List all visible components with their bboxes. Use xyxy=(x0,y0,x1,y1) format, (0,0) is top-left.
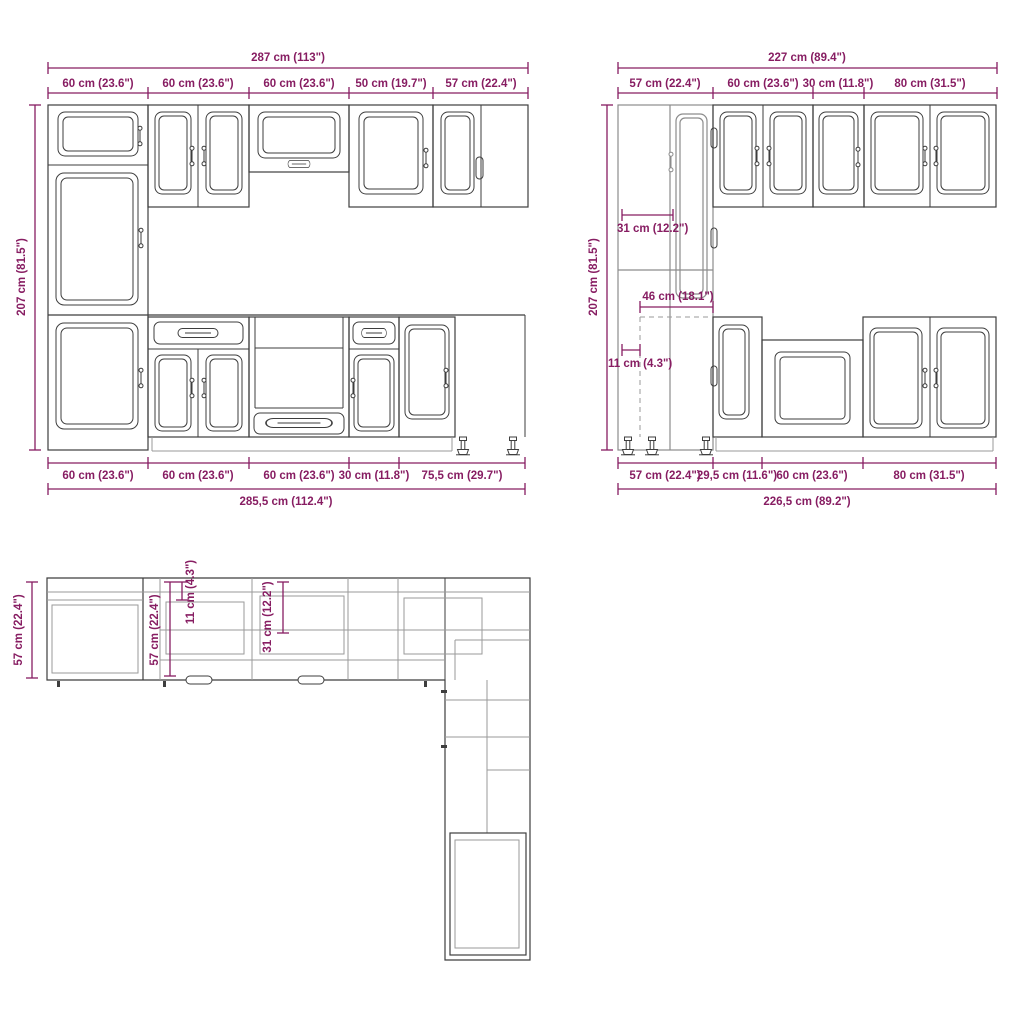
side-top-segment-label: 30 cm (11.8") xyxy=(803,78,874,90)
front-top-segment-label: 60 cm (23.6") xyxy=(263,78,334,90)
front-bottom-segment-label: 30 cm (11.8") xyxy=(339,470,410,482)
front-top-segment-label: 60 cm (23.6") xyxy=(62,78,133,90)
side-upper-depth-label: 31 cm (12.2") xyxy=(617,223,688,235)
side-top-segment-label: 80 cm (31.5") xyxy=(894,78,965,90)
front-overall-width-bottom-label: 285,5 cm (112.4") xyxy=(239,496,332,508)
front-top-segment-label: 60 cm (23.6") xyxy=(162,78,233,90)
front-bottom-segment-label: 60 cm (23.6") xyxy=(162,470,233,482)
front-height-label: 207 cm (81.5") xyxy=(16,238,28,316)
plan-side-offset-label: 11 cm (4.3") xyxy=(185,560,197,624)
front-cabinet-drawing xyxy=(48,105,528,455)
side-offset-label: 11 cm (4.3") xyxy=(608,358,672,370)
side-corner-clearance-label: 46 cm (18.1") xyxy=(642,291,713,303)
kitchen-cabinet-dimension-diagram: 287 cm (113") 60 cm (23.6") 60 cm (23.6"… xyxy=(0,0,1024,1024)
side-bottom-segment-label: 29,5 cm (11.6") xyxy=(697,470,777,482)
side-overall-width-label: 227 cm (89.4") xyxy=(768,52,846,64)
side-bottom-segment-label: 57 cm (22.4") xyxy=(629,470,700,482)
front-elevation-diagram: 287 cm (113") 60 cm (23.6") 60 cm (23.6"… xyxy=(16,52,528,508)
plan-wall-depth-label: 31 cm (12.2") xyxy=(262,581,274,652)
front-bottom-segment-label: 60 cm (23.6") xyxy=(62,470,133,482)
front-bottom-segment-label: 60 cm (23.6") xyxy=(263,470,334,482)
side-cabinet-drawing xyxy=(618,105,996,455)
front-overall-width-label: 287 cm (113") xyxy=(251,52,325,64)
front-top-segment-label: 57 cm (22.4") xyxy=(445,78,516,90)
side-overall-width-bottom-label: 226,5 cm (89.2") xyxy=(763,496,850,508)
front-top-segment-label: 50 cm (19.7") xyxy=(355,78,426,90)
side-bottom-segment-label: 60 cm (23.6") xyxy=(776,470,847,482)
side-elevation-diagram: 227 cm (89.4") 57 cm (22.4") 60 cm (23.6… xyxy=(588,52,997,508)
side-bottom-segment-label: 80 cm (31.5") xyxy=(893,470,964,482)
plan-counter-depth-label: 57 cm (22.4") xyxy=(149,594,161,665)
plan-cabinet-drawing xyxy=(47,578,530,960)
plan-view-diagram: 57 cm (22.4") 57 cm (22.4") 11 cm (4.3")… xyxy=(13,560,530,960)
side-top-segment-label: 60 cm (23.6") xyxy=(727,78,798,90)
front-bottom-segment-label: 75,5 cm (29.7") xyxy=(422,470,503,482)
plan-left-depth-label: 57 cm (22.4") xyxy=(13,594,25,665)
side-height-label: 207 cm (81.5") xyxy=(588,238,600,316)
side-top-segment-label: 57 cm (22.4") xyxy=(629,78,700,90)
front-dimensions: 287 cm (113") 60 cm (23.6") 60 cm (23.6"… xyxy=(16,52,528,508)
